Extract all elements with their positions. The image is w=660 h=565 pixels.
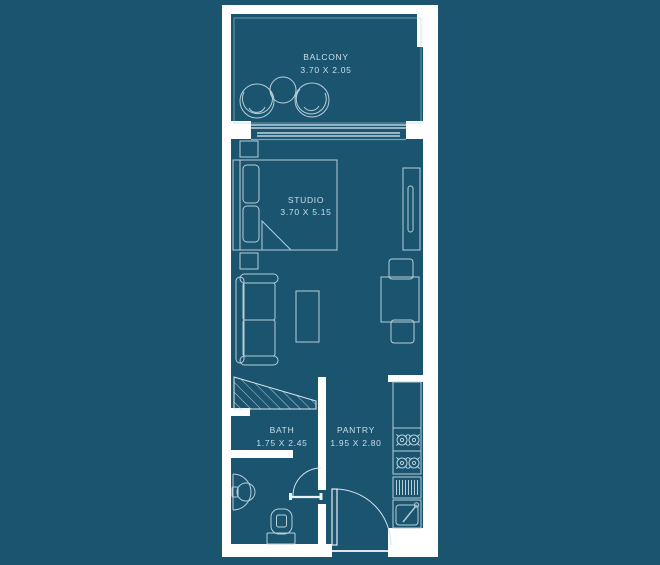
studio-dimensions: 3.70 X 5.15 <box>280 207 331 217</box>
bottom-wall-right-block <box>388 528 438 557</box>
balcony-dimensions: 3.70 X 2.05 <box>300 65 351 75</box>
pantry-label: PANTRY <box>337 425 375 435</box>
floor-plan-page: BALCONY 3.70 X 2.05 STUDIO 3.70 X 5.15 B… <box>0 0 660 565</box>
partition-wall-upper <box>318 377 326 490</box>
outer-wall-left <box>222 5 231 557</box>
bath-dimensions: 1.75 X 2.45 <box>256 438 307 448</box>
bath-label: BATH <box>270 425 295 435</box>
door-cap-left <box>289 493 292 500</box>
background <box>0 0 660 565</box>
outer-wall-top <box>222 5 438 14</box>
outer-wall-right <box>423 5 438 528</box>
door-cap-right <box>320 493 323 500</box>
bottom-wall-left <box>222 544 332 557</box>
balcony-wall-left <box>222 121 251 139</box>
entrance-threshold <box>332 550 388 552</box>
balcony-label: BALCONY <box>303 52 349 62</box>
bath-top-wall <box>222 450 293 458</box>
pantry-top-wall <box>388 375 438 382</box>
floor-plan-canvas: BALCONY 3.70 X 2.05 STUDIO 3.70 X 5.15 B… <box>0 0 660 565</box>
pantry-dimensions: 1.95 X 2.80 <box>330 438 381 448</box>
studio-label: STUDIO <box>288 195 324 205</box>
partition-wall-lower <box>318 504 326 545</box>
balcony-wall-right <box>406 121 438 139</box>
